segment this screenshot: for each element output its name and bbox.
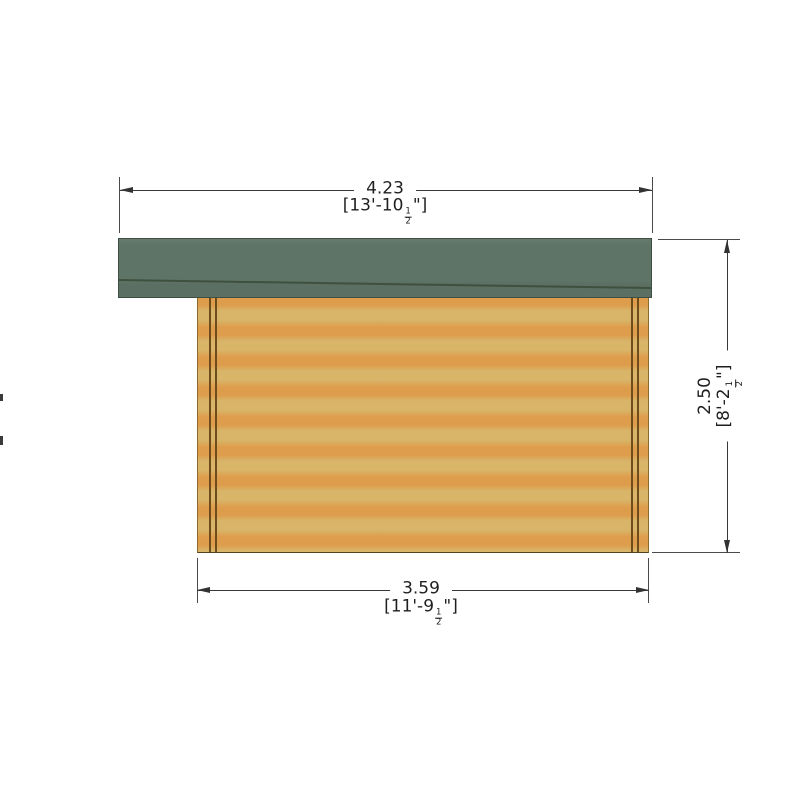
top-dim-imperial-suffix: "] (413, 196, 427, 216)
top-dim-arrow-left (120, 187, 133, 193)
wall-corner-joint-line-right-outer (637, 298, 639, 552)
bottom-dim-metric-value: 3.59 (402, 579, 440, 599)
left-edge-text-fragment-2 (0, 436, 3, 445)
wall-corner-joint-line-left-outer (209, 298, 211, 552)
right-dim-label: 2.50 [8'-212"] (694, 351, 748, 442)
roof-fascia-line (118, 279, 652, 289)
top-dim-extension-line-left (119, 177, 120, 233)
bottom-dim-arrow-right (636, 587, 649, 593)
right-dim-imperial-suffix: "] (714, 365, 734, 379)
top-dim-imperial-label: [13'-1012"] (343, 197, 428, 228)
roof (118, 238, 652, 298)
bottom-dim-fraction-denominator: 2 (436, 619, 441, 628)
wall-corner-joint-line-left-inner (215, 298, 217, 552)
top-dim-extension-line-right (652, 177, 653, 233)
right-dim-imperial-label: [8'-212"] (715, 365, 746, 428)
right-dim-metric-value: 2.50 (695, 377, 715, 415)
right-dim-fraction: 12 (726, 380, 746, 387)
bottom-dim-extension-line-left (197, 558, 198, 603)
wall (197, 298, 649, 553)
top-dim-arrow-right (639, 187, 652, 193)
right-dim-metric-label: 2.50 (696, 365, 715, 428)
bottom-dim-imperial-label: [11'-912"] (384, 598, 458, 629)
right-dim-arrow-down (724, 540, 730, 553)
bottom-dim-imperial-prefix: [11'-9 (384, 597, 434, 617)
right-dim-fraction-denominator: 2 (737, 381, 746, 386)
top-dim-fraction-denominator: 2 (405, 218, 410, 227)
right-dim-imperial-prefix: [8'-2 (714, 388, 734, 427)
bottom-dim-extension-line-right (648, 558, 649, 603)
bottom-dim-metric-label: 3.59 (390, 580, 452, 599)
bottom-dim-imperial-suffix: "] (443, 597, 457, 617)
bottom-dim-fraction: 12 (435, 609, 442, 629)
wall-corner-joint-line-right-inner (631, 298, 633, 552)
top-dim-imperial-prefix: [13'-10 (343, 196, 404, 216)
bottom-dim-arrow-left (197, 587, 210, 593)
top-dim-fraction: 12 (404, 208, 411, 228)
right-dim-arrow-up (724, 240, 730, 253)
left-edge-text-fragment-1 (0, 394, 3, 401)
elevation-drawing-canvas: 4.23 [13'-1012"] 2.50 [8'-212"] 3.59 [11… (0, 0, 800, 800)
